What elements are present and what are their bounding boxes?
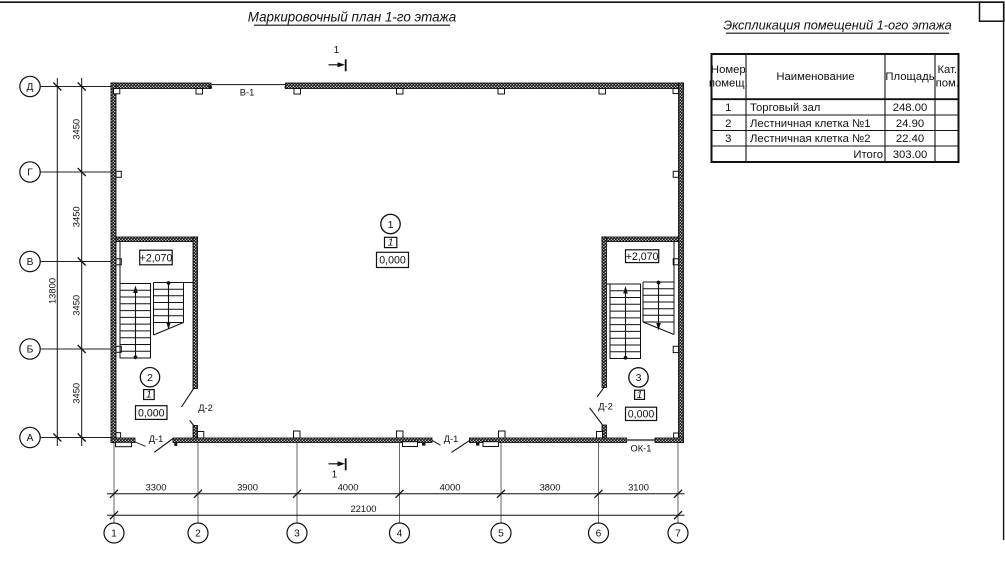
svg-text:Д-2: Д-2: [598, 402, 613, 412]
svg-text:22100: 22100: [350, 503, 376, 514]
svg-text:Маркировочный план 1-го этажа: Маркировочный план 1-го этажа: [248, 9, 456, 24]
svg-text:4000: 4000: [440, 482, 461, 493]
svg-text:В-1: В-1: [240, 87, 254, 97]
svg-text:Д-1: Д-1: [149, 434, 164, 444]
svg-text:3450: 3450: [71, 119, 82, 140]
svg-text:Итого: Итого: [853, 149, 883, 161]
svg-text:+2,070: +2,070: [140, 252, 173, 264]
svg-text:24.90: 24.90: [896, 118, 924, 130]
svg-text:3450: 3450: [71, 206, 82, 227]
svg-text:4: 4: [397, 529, 403, 540]
svg-text:0,000: 0,000: [138, 407, 165, 419]
svg-text:3450: 3450: [71, 383, 82, 404]
svg-text:Д: Д: [27, 82, 34, 93]
svg-text:1: 1: [388, 238, 394, 249]
svg-text:Лестничная клетка №1: Лестничная клетка №1: [750, 118, 871, 130]
svg-text:3300: 3300: [146, 482, 167, 493]
svg-text:3100: 3100: [628, 482, 649, 493]
svg-text:1: 1: [332, 470, 338, 481]
svg-text:+2,070: +2,070: [626, 251, 659, 263]
svg-text:1: 1: [146, 390, 152, 401]
svg-text:Кат.: Кат.: [937, 64, 957, 76]
svg-text:А: А: [27, 433, 34, 444]
svg-text:3900: 3900: [237, 482, 258, 493]
svg-text:1: 1: [637, 390, 643, 401]
svg-text:2: 2: [147, 372, 153, 384]
svg-text:1: 1: [388, 219, 394, 231]
svg-text:3800: 3800: [540, 482, 561, 493]
svg-text:1: 1: [334, 45, 340, 56]
svg-text:Площадь: Площадь: [885, 71, 934, 83]
svg-text:7: 7: [675, 529, 681, 540]
svg-text:Д-2: Д-2: [198, 403, 213, 413]
svg-text:22.40: 22.40: [896, 133, 924, 145]
svg-text:2: 2: [725, 118, 731, 130]
svg-text:пом.: пом.: [936, 78, 959, 90]
svg-text:Г: Г: [27, 168, 33, 179]
svg-text:2: 2: [195, 529, 201, 540]
svg-text:Д-1: Д-1: [444, 434, 459, 444]
svg-text:Номер: Номер: [711, 64, 746, 76]
svg-text:303.00: 303.00: [893, 149, 928, 161]
svg-text:3: 3: [636, 372, 642, 384]
svg-text:248.00: 248.00: [893, 102, 928, 114]
svg-text:В: В: [27, 257, 34, 268]
svg-text:1: 1: [725, 102, 731, 114]
svg-text:Б: Б: [27, 345, 34, 356]
svg-text:13800: 13800: [46, 278, 57, 304]
svg-text:4000: 4000: [338, 482, 359, 493]
svg-text:ОК-1: ОК-1: [631, 443, 652, 453]
svg-text:Торговый зал: Торговый зал: [750, 102, 820, 114]
svg-text:0,000: 0,000: [379, 255, 406, 267]
svg-text:3450: 3450: [71, 295, 82, 316]
svg-text:6: 6: [596, 529, 602, 540]
svg-text:1: 1: [111, 529, 117, 540]
svg-text:3: 3: [725, 133, 731, 145]
svg-text:Экспликация помещений 1-ого эт: Экспликация помещений 1-ого этажа: [723, 18, 952, 33]
svg-text:помещ.: помещ.: [709, 78, 748, 90]
svg-text:3: 3: [294, 529, 300, 540]
svg-text:Лестничная клетка №2: Лестничная клетка №2: [750, 133, 871, 145]
svg-text:5: 5: [498, 529, 504, 540]
svg-text:0,000: 0,000: [628, 409, 655, 421]
svg-text:Наименование: Наименование: [776, 71, 854, 83]
